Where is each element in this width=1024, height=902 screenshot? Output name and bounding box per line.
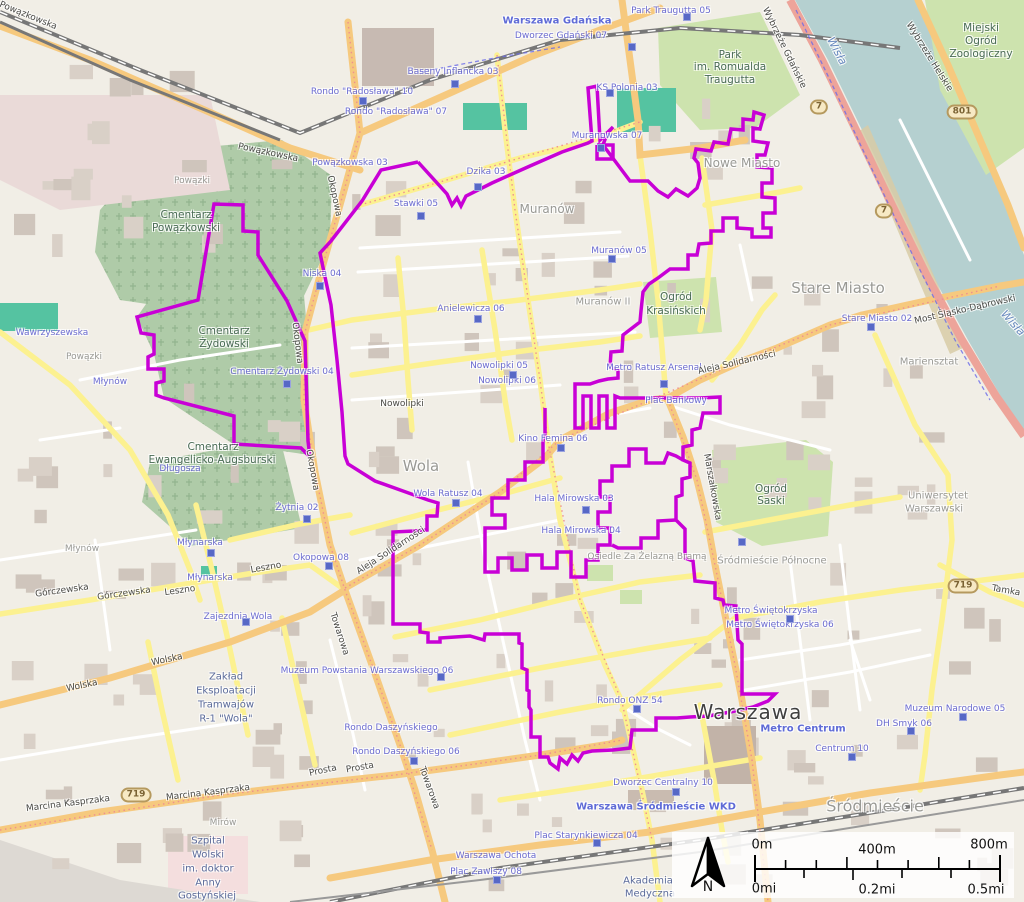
scale-box: N 0m 400m 800m 0mi 0.2mi 0.5mi [672,832,1014,898]
boundary-overlay-path [612,520,676,548]
boundary-overlay-path [485,408,683,577]
scale-02mi: 0.2mi [859,883,896,898]
boundary-overlay-canvas [0,0,1024,902]
boundary-overlay-path [137,204,310,457]
scale-0m: 0m [752,838,773,853]
scale-400m: 400m [858,843,895,858]
scale-05mi: 0.5mi [968,883,1005,898]
map-viewport[interactable]: Warszawa GdańskaMetro CentrumWarszawa Śr… [0,0,1024,902]
boundary-overlay-path [320,86,775,769]
scale-ruler [672,832,1014,898]
scale-800m: 800m [970,838,1007,853]
scale-0mi: 0mi [752,882,777,897]
